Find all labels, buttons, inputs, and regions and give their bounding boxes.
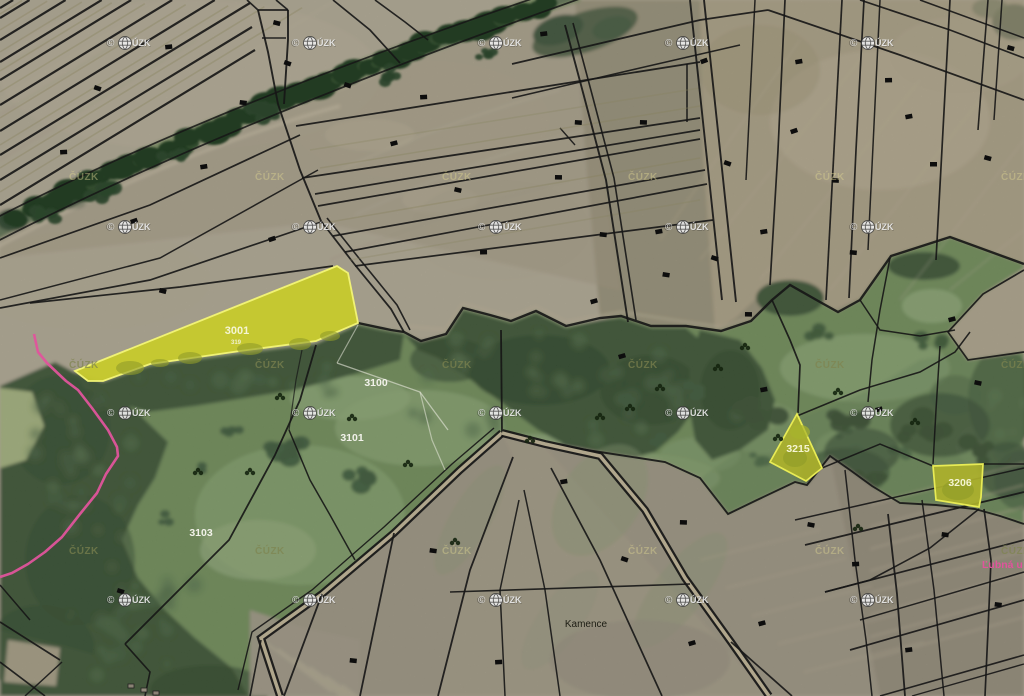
svg-text:©: © [107, 222, 115, 233]
svg-text:ÚZK: ÚZK [317, 221, 336, 232]
svg-text:Kamence: Kamence [565, 619, 608, 630]
svg-text:ČÚZK: ČÚZK [815, 544, 845, 557]
svg-text:©: © [292, 595, 300, 606]
svg-text:ÚZK: ÚZK [132, 407, 151, 418]
svg-text:ÚZK: ÚZK [317, 37, 336, 48]
svg-text:ČÚZK: ČÚZK [69, 170, 99, 183]
svg-text:©: © [107, 595, 115, 606]
svg-text:ČÚZK: ČÚZK [815, 358, 845, 371]
svg-text:ÚZK: ÚZK [875, 37, 894, 48]
svg-text:ÚZK: ÚZK [875, 594, 894, 605]
svg-text:ÚZK: ÚZK [503, 37, 522, 48]
svg-text:ÚZK: ÚZK [503, 594, 522, 605]
svg-text:©: © [850, 222, 858, 233]
svg-text:©: © [292, 38, 300, 49]
svg-text:ČÚZK: ČÚZK [442, 170, 472, 183]
svg-text:©: © [850, 595, 858, 606]
svg-text:3001: 3001 [225, 325, 249, 337]
svg-text:©: © [478, 38, 486, 49]
svg-text:©: © [665, 38, 673, 49]
svg-text:ÚZK: ÚZK [875, 407, 894, 418]
svg-text:©: © [478, 222, 486, 233]
svg-text:ÚZK: ÚZK [503, 221, 522, 232]
svg-text:©: © [478, 595, 486, 606]
svg-text:ÚZK: ÚZK [132, 221, 151, 232]
svg-text:©: © [850, 38, 858, 49]
svg-text:ČÚZK: ČÚZK [1001, 170, 1024, 183]
svg-text:ÚZK: ÚZK [317, 594, 336, 605]
svg-text:©: © [478, 408, 486, 419]
svg-text:ÚZK: ÚZK [690, 407, 709, 418]
svg-text:3100: 3100 [364, 377, 388, 389]
svg-text:ČÚZK: ČÚZK [69, 358, 99, 371]
svg-text:ÚZK: ÚZK [690, 221, 709, 232]
svg-text:ČÚZK: ČÚZK [1001, 358, 1024, 371]
svg-text:3206: 3206 [948, 477, 972, 489]
svg-text:ČÚZK: ČÚZK [69, 544, 99, 557]
svg-text:©: © [292, 222, 300, 233]
svg-text:ÚZK: ÚZK [317, 407, 336, 418]
svg-text:ÚZK: ÚZK [690, 594, 709, 605]
svg-text:3101: 3101 [340, 432, 364, 444]
svg-text:ČÚZK: ČÚZK [628, 170, 658, 183]
svg-text:ČÚZK: ČÚZK [255, 170, 285, 183]
svg-text:©: © [665, 222, 673, 233]
svg-text:ČÚZK: ČÚZK [442, 544, 472, 557]
svg-text:ČÚZK: ČÚZK [255, 358, 285, 371]
svg-text:ČÚZK: ČÚZK [628, 358, 658, 371]
svg-text:ČÚZK: ČÚZK [815, 170, 845, 183]
svg-text:ÚZK: ÚZK [875, 221, 894, 232]
svg-text:ÚZK: ÚZK [690, 37, 709, 48]
svg-text:319: 319 [231, 340, 242, 346]
svg-text:©: © [107, 38, 115, 49]
svg-text:©: © [850, 408, 858, 419]
svg-text:ÚZK: ÚZK [132, 594, 151, 605]
svg-text:©: © [292, 408, 300, 419]
svg-text:ÚZK: ÚZK [132, 37, 151, 48]
svg-text:ČÚZK: ČÚZK [628, 544, 658, 557]
svg-text:ČÚZK: ČÚZK [255, 544, 285, 557]
svg-text:ČÚZK: ČÚZK [1001, 544, 1024, 557]
svg-text:©: © [107, 408, 115, 419]
svg-text:©: © [665, 595, 673, 606]
svg-text:ČÚZK: ČÚZK [442, 358, 472, 371]
svg-text:3103: 3103 [189, 527, 213, 539]
svg-text:ÚZK: ÚZK [503, 407, 522, 418]
svg-text:©: © [665, 408, 673, 419]
svg-text:Ľubná u: Ľubná u [982, 559, 1023, 571]
svg-text:3215: 3215 [786, 443, 810, 455]
